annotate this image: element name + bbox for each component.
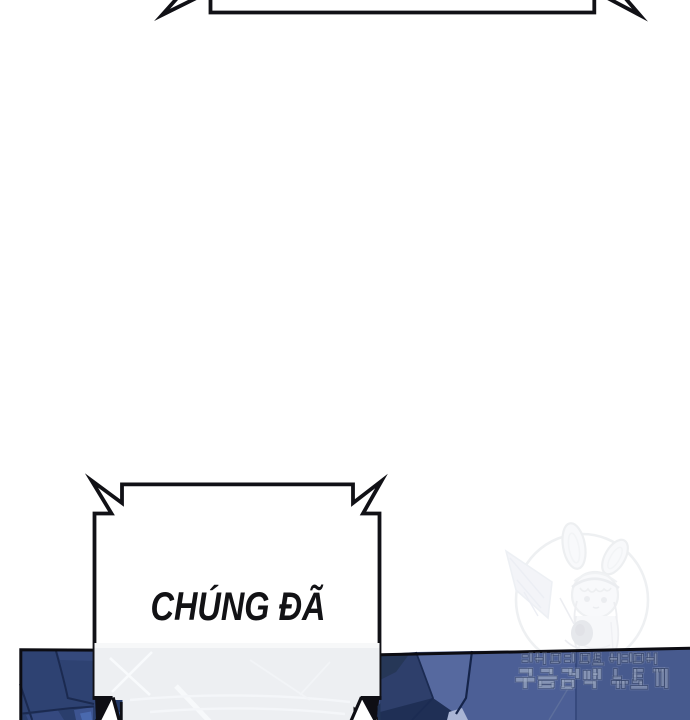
- svg-text:CHÚNG ĐÃ: CHÚNG ĐÃ: [151, 583, 326, 629]
